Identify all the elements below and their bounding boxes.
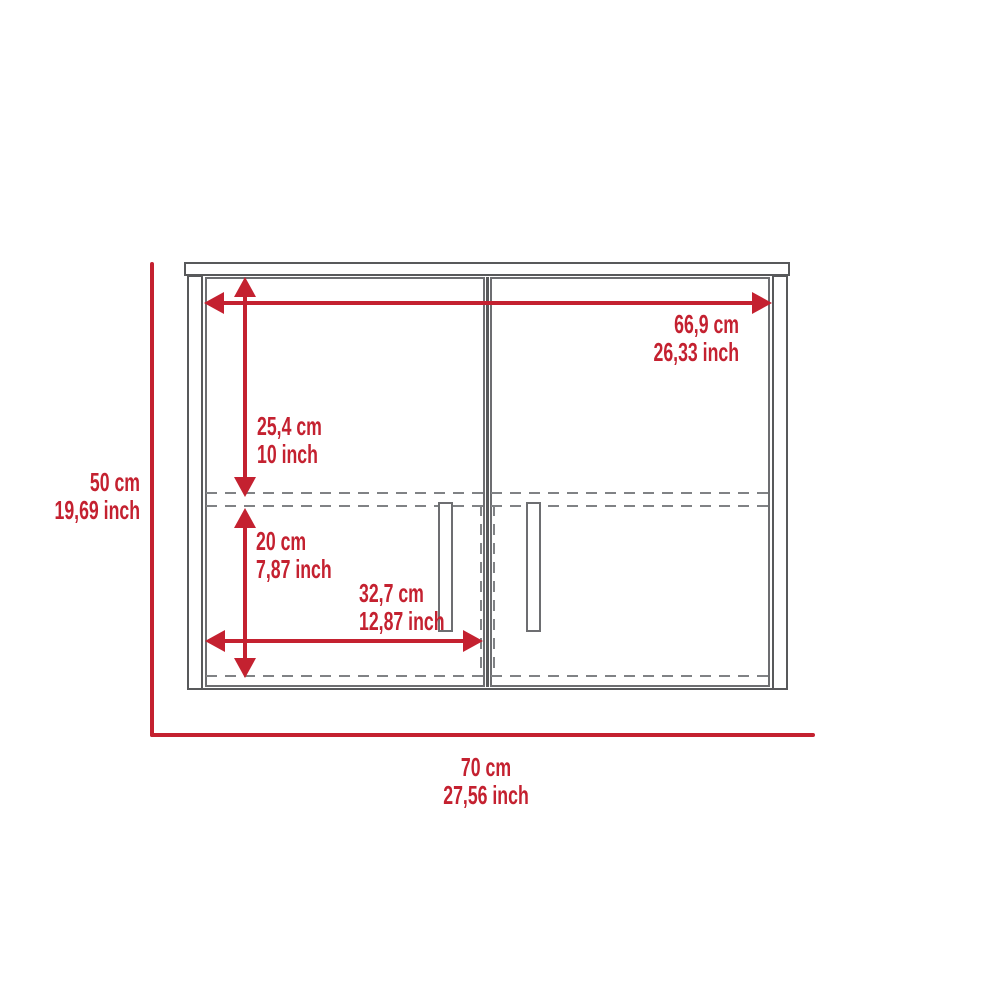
overall-height-inch: 19,69 inch [45, 496, 140, 524]
arrowhead-left-icon [204, 292, 224, 314]
upper-section-cm: 25,4 cm [257, 412, 393, 440]
arrowhead-down-icon [234, 658, 256, 678]
door-width-dimension-line [222, 639, 466, 643]
overall-width-inch: 27,56 inch [418, 781, 554, 809]
arrowhead-up-icon [234, 277, 256, 297]
overall-width-label: 70 cm 27,56 inch [418, 753, 554, 809]
arrowhead-left-icon [205, 630, 225, 652]
door-width-label: 32,7 cm 12,87 inch [359, 579, 509, 635]
dimension-diagram: 50 cm 19,69 inch 66,9 cm 26,33 inch 25,4… [0, 0, 1000, 1000]
overall-height-extent-line [150, 262, 154, 737]
bottom-dashed-line [206, 675, 770, 677]
shelf-dashed-line-top [206, 492, 770, 494]
right-door-handle [526, 502, 541, 632]
arrowhead-down-icon [234, 477, 256, 497]
overall-width-cm: 70 cm [418, 753, 554, 781]
overall-height-cm: 50 cm [45, 468, 140, 496]
arrowhead-right-icon [752, 292, 772, 314]
lower-section-cm: 20 cm [256, 527, 392, 555]
door-width-cm: 32,7 cm [359, 579, 509, 607]
lower-section-label: 20 cm 7,87 inch [256, 527, 392, 583]
cabinet-right-side-panel [772, 275, 788, 690]
cabinet-bottom-edge [187, 688, 788, 690]
cabinet-top-panel [184, 262, 790, 276]
inner-width-cm: 66,9 cm [603, 310, 739, 338]
shelf-dashed-line-bottom [206, 505, 770, 507]
door-width-inch: 12,87 inch [359, 607, 509, 635]
inner-width-label: 66,9 cm 26,33 inch [603, 310, 739, 366]
arrowhead-up-icon [234, 508, 256, 528]
upper-section-label: 25,4 cm 10 inch [257, 412, 393, 468]
upper-section-inch: 10 inch [257, 440, 393, 468]
inner-width-inch: 26,33 inch [603, 338, 739, 366]
overall-width-extent-line [150, 733, 815, 737]
inner-width-dimension-line [220, 301, 754, 305]
overall-height-label: 50 cm 19,69 inch [45, 468, 140, 524]
cabinet-left-side-panel [187, 275, 203, 690]
upper-section-dimension-line [243, 294, 247, 480]
